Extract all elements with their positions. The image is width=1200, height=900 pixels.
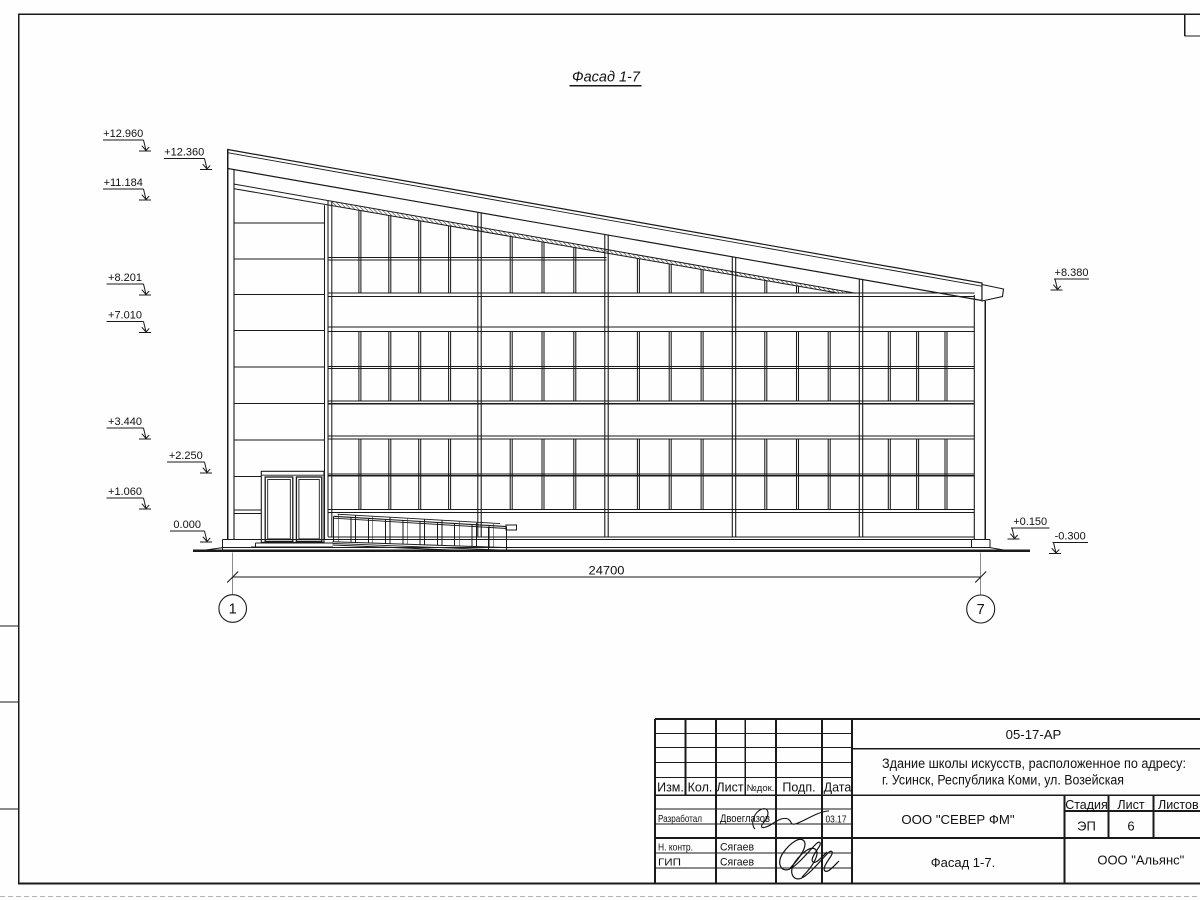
svg-text:Фасад 1-7.: Фасад 1-7. bbox=[931, 855, 995, 870]
svg-text:+11.184: +11.184 bbox=[104, 177, 143, 189]
svg-text:1: 1 bbox=[229, 602, 237, 618]
svg-text:+7.010: +7.010 bbox=[108, 310, 142, 322]
svg-text:Н. контр.: Н. контр. bbox=[658, 842, 693, 853]
svg-text:г. Усинск, Республика Коми, ул: г. Усинск, Республика Коми, ул. Возейска… bbox=[882, 773, 1124, 788]
svg-text:+1.060: +1.060 bbox=[108, 486, 142, 498]
svg-text:ООО "Альянс": ООО "Альянс" bbox=[1097, 853, 1184, 868]
svg-text:ЭП: ЭП bbox=[1077, 819, 1096, 834]
svg-text:Лист: Лист bbox=[1117, 798, 1144, 812]
svg-text:+12.960: +12.960 bbox=[103, 128, 143, 140]
svg-text:Здание школы искусств, располо: Здание школы искусств, расположенное по … bbox=[882, 756, 1186, 771]
svg-text:№док.: №док. bbox=[747, 783, 775, 794]
svg-text:+3.440: +3.440 bbox=[108, 416, 142, 428]
svg-text:05-17-АР: 05-17-АР bbox=[1006, 727, 1062, 742]
svg-text:Сягаев: Сягаев bbox=[720, 841, 754, 853]
svg-text:7: 7 bbox=[977, 602, 985, 618]
svg-text:ООО "СЕВЕР ФМ": ООО "СЕВЕР ФМ" bbox=[901, 812, 1015, 827]
svg-text:+0.150: +0.150 bbox=[1013, 516, 1047, 528]
svg-text:0.000: 0.000 bbox=[173, 519, 201, 531]
svg-text:+2.250: +2.250 bbox=[169, 450, 203, 462]
svg-text:Разработал: Разработал bbox=[658, 813, 702, 825]
svg-text:6: 6 bbox=[1127, 819, 1134, 834]
svg-text:Листов: Листов bbox=[1158, 798, 1199, 812]
svg-text:Стадия: Стадия bbox=[1065, 798, 1108, 812]
svg-text:+12.360: +12.360 bbox=[164, 147, 204, 159]
svg-text:ГИП: ГИП bbox=[658, 858, 681, 869]
svg-text:Дата: Дата bbox=[824, 781, 852, 795]
svg-text:-0.300: -0.300 bbox=[1055, 531, 1086, 543]
svg-text:24700: 24700 bbox=[589, 564, 625, 578]
svg-text:+8.380: +8.380 bbox=[1055, 267, 1089, 279]
svg-text:Сягаев: Сягаев bbox=[720, 857, 754, 869]
svg-text:Изм.: Изм. bbox=[657, 781, 684, 795]
svg-text:Лист: Лист bbox=[716, 781, 743, 795]
svg-text:03.17: 03.17 bbox=[826, 815, 847, 826]
svg-text:Кол.: Кол. bbox=[688, 781, 713, 795]
svg-text:Подп.: Подп. bbox=[782, 781, 815, 795]
svg-text:Фасад 1-7: Фасад 1-7 bbox=[572, 70, 641, 86]
svg-text:+8.201: +8.201 bbox=[108, 272, 142, 284]
